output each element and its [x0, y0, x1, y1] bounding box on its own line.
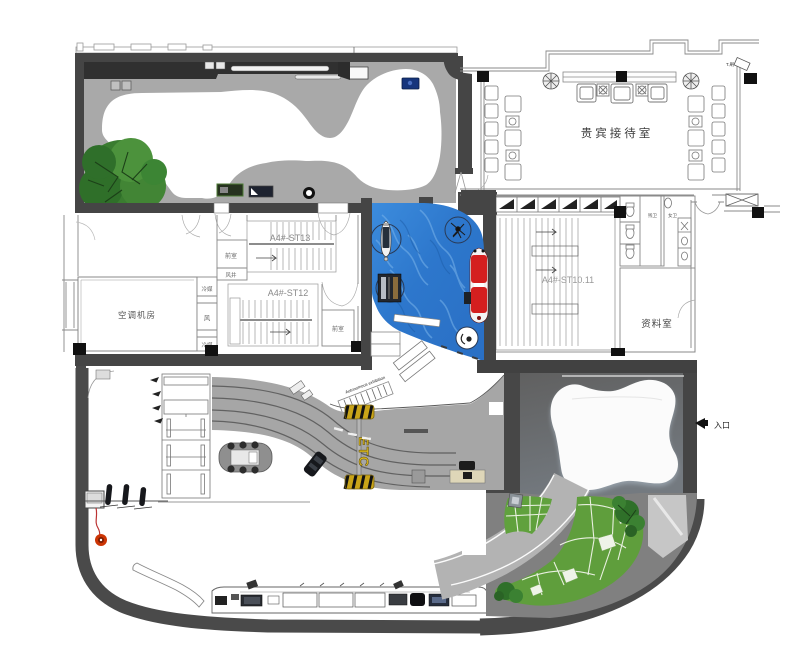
svg-text:空调机房: 空调机房	[118, 310, 156, 320]
svg-text:ETC: ETC	[356, 437, 372, 468]
svg-text:A4#-ST10.11: A4#-ST10.11	[542, 275, 594, 285]
svg-text:前室: 前室	[332, 325, 344, 333]
svg-text:资料室: 资料室	[641, 318, 673, 330]
svg-text:风: 风	[204, 314, 211, 322]
svg-text:风井: 风井	[225, 271, 237, 279]
svg-text:贵宾接待室: 贵宾接待室	[581, 126, 654, 140]
svg-text:残卫: 残卫	[648, 212, 657, 219]
svg-text:前室: 前室	[225, 252, 237, 260]
svg-text:女卫: 女卫	[668, 212, 677, 219]
svg-text:A4#-ST12: A4#-ST12	[268, 288, 309, 298]
svg-text:入口: 入口	[714, 421, 730, 430]
svg-text:T.刷: T.刷	[726, 61, 735, 68]
svg-text:A4#-ST13: A4#-ST13	[270, 233, 311, 243]
svg-text:冷媒: 冷媒	[201, 285, 213, 293]
